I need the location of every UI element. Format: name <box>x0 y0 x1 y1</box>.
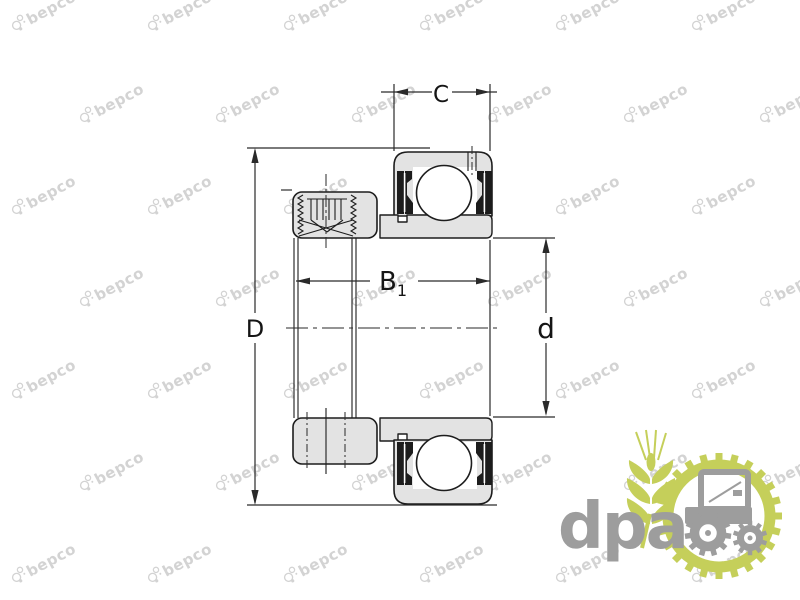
bepco-watermark: bepco <box>417 0 487 36</box>
bepco-watermark: bepco <box>621 80 691 128</box>
bepco-watermark: bepco <box>145 540 215 588</box>
bepco-watermark-text: bepco <box>23 0 79 29</box>
bepco-watermark-text: bepco <box>91 80 147 121</box>
bepco-watermark-text: bepco <box>567 0 623 29</box>
ball-bottom <box>417 436 472 491</box>
bepco-watermark-text: bepco <box>91 264 147 305</box>
bepco-watermark: bepco <box>689 0 759 36</box>
bepco-watermark-text: bepco <box>771 448 800 489</box>
dimension-C: C <box>381 82 497 151</box>
bepco-watermark: bepco <box>213 448 283 496</box>
bepco-watermark-text: bepco <box>431 0 487 29</box>
bepco-watermark: bepco <box>145 0 215 36</box>
bepco-watermark-text: bepco <box>771 80 800 121</box>
bepco-watermark-text: bepco <box>295 540 351 581</box>
bepco-watermark: bepco <box>349 80 419 128</box>
bepco-watermark-text: bepco <box>23 172 79 213</box>
ball-top <box>417 166 472 221</box>
bepco-watermark-text: bepco <box>295 0 351 29</box>
bepco-watermark-text: bepco <box>159 0 215 29</box>
bepco-watermark: bepco <box>553 356 623 404</box>
bepco-watermark-text: bepco <box>159 540 215 581</box>
bepco-watermark: bepco <box>417 356 487 404</box>
bepco-watermark-text: bepco <box>771 264 800 305</box>
dim-label-D: D <box>246 315 264 343</box>
bepco-watermark-text: bepco <box>295 356 351 397</box>
bepco-watermark-text: bepco <box>499 80 555 121</box>
bepco-watermark: bepco <box>213 264 283 312</box>
bepco-watermark: bepco <box>213 80 283 128</box>
bepco-watermark: bepco <box>77 448 147 496</box>
bepco-watermark: bepco <box>281 0 351 36</box>
bepco-watermark: bepco <box>281 356 351 404</box>
bepco-watermark: bepco <box>145 172 215 220</box>
dpa-logo-text: dpa <box>558 490 687 564</box>
dimension-d: d <box>493 238 555 417</box>
bepco-watermark-text: bepco <box>431 540 487 581</box>
bepco-watermark: bepco <box>281 540 351 588</box>
bepco-watermark-text: bepco <box>499 448 555 489</box>
bepco-watermark: bepco <box>689 172 759 220</box>
bepco-watermark: bepco <box>689 356 759 404</box>
dpa-logo: dpa <box>558 430 782 579</box>
bepco-watermark: bepco <box>9 540 79 588</box>
bepco-watermark: bepco <box>553 0 623 36</box>
bepco-watermark-text: bepco <box>703 172 759 213</box>
bepco-watermark: bepco <box>757 80 800 128</box>
technical-drawing-canvas: bepcobepcobepcobepcobepcobepcobepcobepco… <box>0 0 800 600</box>
bepco-watermark: bepco <box>553 172 623 220</box>
bepco-watermark-text: bepco <box>227 80 283 121</box>
bepco-watermark: bepco <box>9 0 79 36</box>
bearing-drawing-svg: bepcobepcobepcobepcobepcobepcobepcobepco… <box>0 0 800 600</box>
bepco-watermark-text: bepco <box>703 356 759 397</box>
bepco-watermark-text: bepco <box>567 356 623 397</box>
bepco-watermark: bepco <box>485 80 555 128</box>
bepco-watermark: bepco <box>757 264 800 312</box>
bepco-watermark: bepco <box>145 356 215 404</box>
locking-collar-bottom <box>293 408 377 474</box>
dim-label-d: d <box>537 312 555 345</box>
bepco-watermark: bepco <box>621 264 691 312</box>
bepco-watermark: bepco <box>9 172 79 220</box>
bepco-watermark: bepco <box>485 264 555 312</box>
bepco-watermark-text: bepco <box>159 172 215 213</box>
bepco-watermark-text: bepco <box>23 540 79 581</box>
bepco-watermark: bepco <box>9 356 79 404</box>
bepco-watermark: bepco <box>417 540 487 588</box>
bepco-watermark-text: bepco <box>91 448 147 489</box>
dim-label-C: C <box>433 82 449 108</box>
bepco-watermark-text: bepco <box>567 172 623 213</box>
bepco-watermark-text: bepco <box>635 80 691 121</box>
bepco-watermark-text: bepco <box>635 264 691 305</box>
bearing-cross-section <box>281 146 500 504</box>
bepco-watermark-text: bepco <box>703 0 759 29</box>
bepco-watermark-text: bepco <box>23 356 79 397</box>
bepco-watermark-text: bepco <box>363 80 419 121</box>
bepco-watermark: bepco <box>77 80 147 128</box>
bepco-watermark-text: bepco <box>159 356 215 397</box>
bepco-watermark-text: bepco <box>431 356 487 397</box>
bepco-watermark: bepco <box>485 448 555 496</box>
bepco-watermark: bepco <box>77 264 147 312</box>
bepco-watermark-text: bepco <box>499 264 555 305</box>
